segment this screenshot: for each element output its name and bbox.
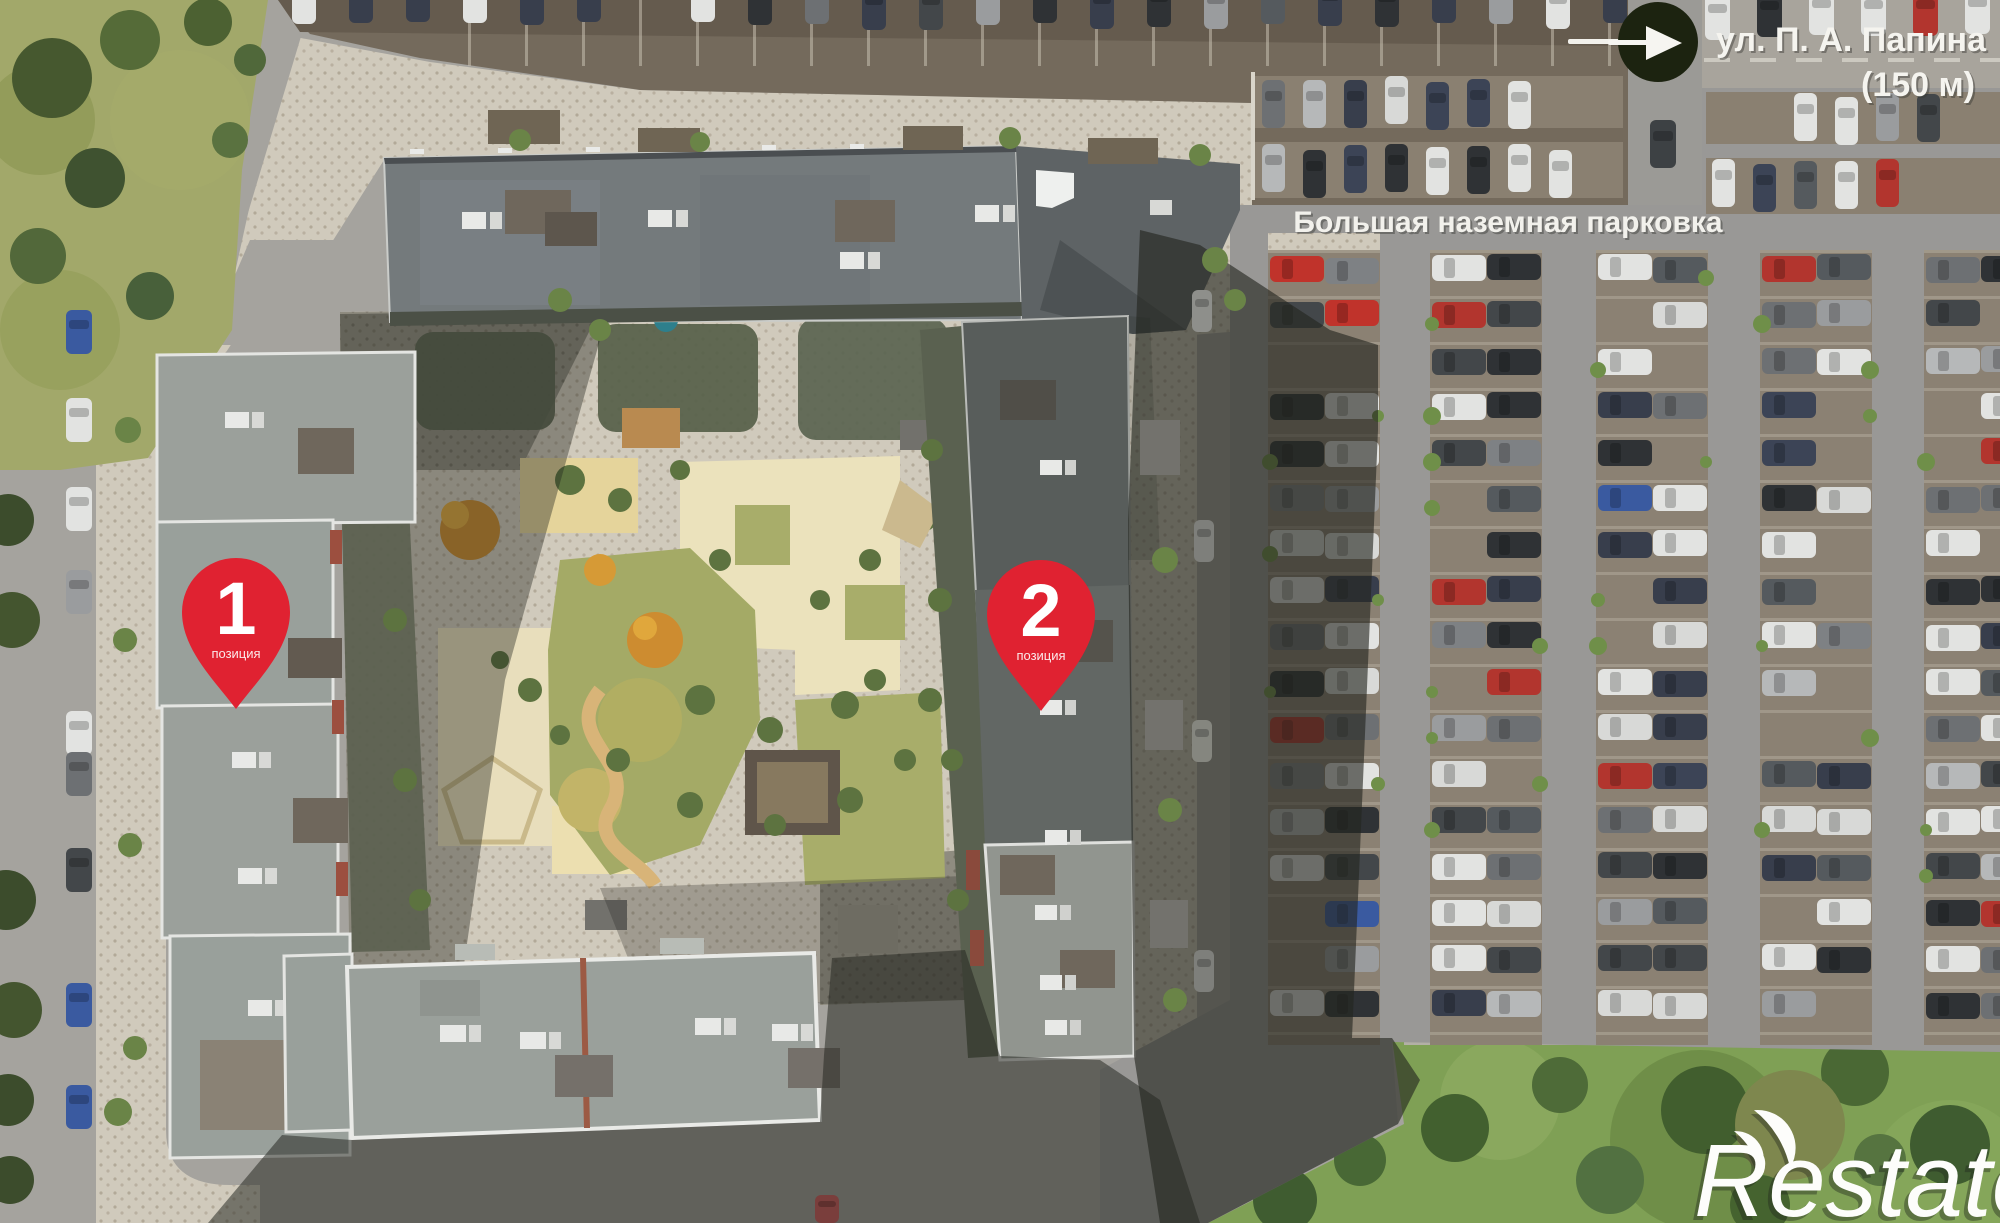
svg-text:Большая наземная парковка: Большая наземная парковка bbox=[1293, 206, 1723, 239]
svg-text:Restate: Restate bbox=[1694, 1123, 2000, 1223]
svg-text:ул. П. А. Папина: ул. П. А. Папина bbox=[1716, 21, 1987, 59]
svg-text:позиция: позиция bbox=[211, 646, 260, 661]
svg-text:позиция: позиция bbox=[1016, 648, 1065, 663]
svg-text:1: 1 bbox=[215, 567, 256, 650]
svg-text:2: 2 bbox=[1020, 569, 1061, 652]
svg-text:(150 м): (150 м) bbox=[1861, 66, 1975, 104]
